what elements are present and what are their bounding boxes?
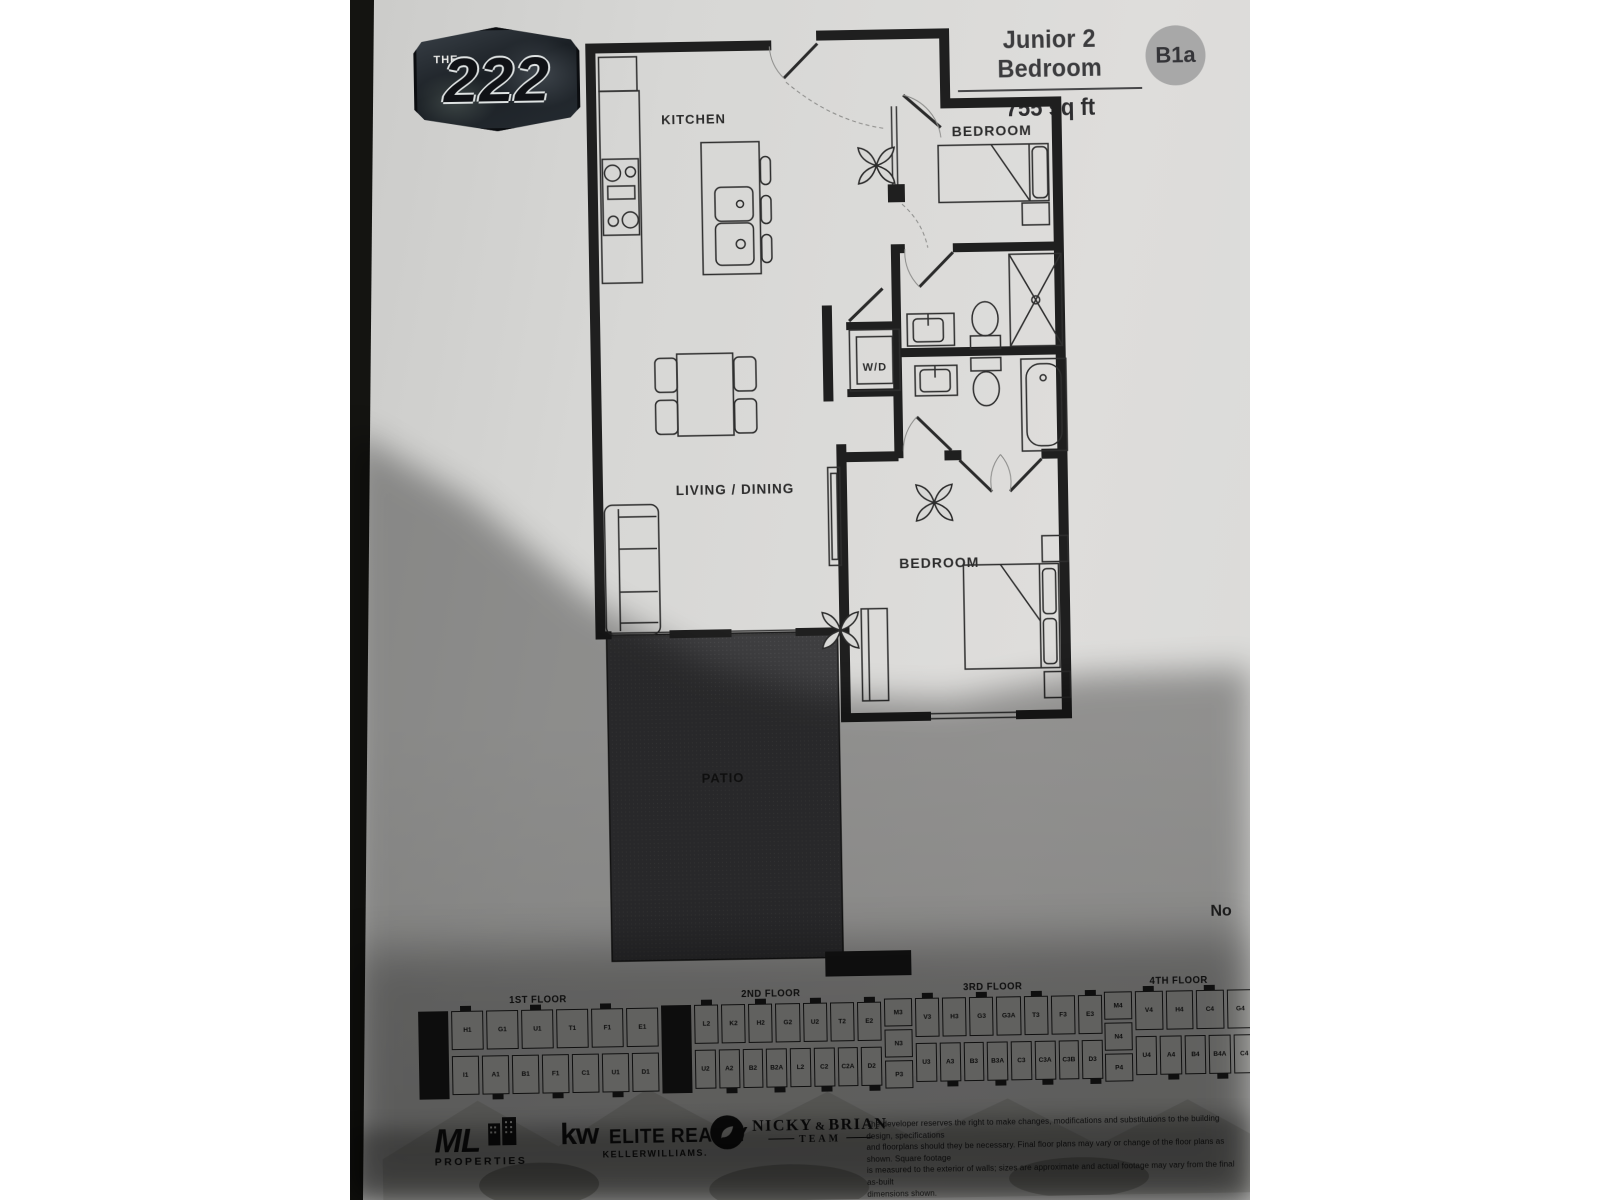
unit-cell: H1 (451, 1011, 484, 1051)
unit-cell: T1 (556, 1009, 589, 1049)
unit-cell: E3 (1078, 995, 1103, 1034)
unit-cell: C4 (1233, 1034, 1250, 1073)
floor-plates: 1ST FLOORH1G1U1T1F1E1I1A1B1F1C1U1D12ND F… (350, 0, 1250, 1200)
unit-cell: C3A (1034, 1041, 1055, 1080)
unit-cell: C3B (1058, 1040, 1079, 1079)
unit-cell: B3A (987, 1041, 1008, 1080)
nicky-brian-logo: NICKY&BRIAN TEAM (710, 1113, 888, 1150)
building-core-block (418, 1011, 450, 1100)
unit-cell: V3 (915, 998, 940, 1037)
unit-cell: A4 (1160, 1035, 1182, 1074)
unit-cell: C2A (837, 1047, 858, 1086)
unit-cell: D1 (632, 1053, 660, 1092)
page: THE 222 Junior 2 Bedroom 755 sq ft B1a (0, 0, 1600, 1200)
unit-cell: U4 (1136, 1036, 1158, 1075)
unit-cell: K2 (721, 1004, 746, 1043)
floor-plate-label: 2ND FLOOR (666, 987, 875, 1002)
unit-cell: T2 (830, 1002, 855, 1041)
floor-plate: 3RD FLOORM3N3P3V3H3G3G3AT3F3E3U3A3B3B3AC… (884, 980, 1104, 1089)
unit-cell: H3 (942, 997, 967, 1036)
unit-cell: H4 (1165, 990, 1193, 1029)
leaf-icon (710, 1115, 745, 1150)
disclaimer-text: The developer reserves the right to make… (866, 1112, 1245, 1200)
unit-cell: U2 (695, 1050, 716, 1089)
unit-cell: B3 (963, 1042, 984, 1081)
unit-cell: E2 (857, 1002, 882, 1041)
unit-cell: E1 (626, 1008, 659, 1048)
unit-cell: M3 (884, 998, 912, 1026)
unit-cell: U1 (521, 1009, 554, 1049)
unit-cell: F3 (1051, 995, 1076, 1034)
unit-cell: N3 (884, 1029, 912, 1057)
unit-cell: B2 (742, 1049, 763, 1088)
unit-cell: F1 (542, 1054, 570, 1093)
unit-cell: D3 (1082, 1040, 1103, 1079)
unit-cell: C1 (572, 1054, 600, 1093)
printed-content: THE 222 Junior 2 Bedroom 755 sq ft B1a (350, 0, 1250, 1200)
unit-cell: G3A (996, 996, 1021, 1035)
unit-cell: I1 (452, 1056, 480, 1095)
ml-properties-logo: ML PROPERTIES (434, 1117, 528, 1169)
unit-cell: C4 (1196, 990, 1224, 1029)
unit-cell: B4A (1209, 1035, 1231, 1074)
unit-cell: G2 (775, 1003, 800, 1042)
unit-cell: N4 (1104, 1022, 1132, 1050)
unit-cell: A1 (482, 1055, 510, 1094)
note-cutoff-text: No (1210, 903, 1232, 921)
floor-plate: 1ST FLOORH1G1U1T1F1E1I1A1B1F1C1U1D1 (418, 993, 660, 1100)
unit-cell: L2 (790, 1048, 811, 1087)
unit-cell: G1 (486, 1010, 519, 1050)
nicky-text: NICKY (752, 1117, 813, 1135)
unit-cell: F1 (591, 1008, 624, 1048)
floor-plate: 4TH FLOORM4N4P4V4H4C4G4U4A4B4B4AC4 (1104, 974, 1250, 1082)
unit-cell: L2 (694, 1004, 719, 1043)
building-core-block (661, 1005, 693, 1094)
unit-cell: D2 (861, 1047, 882, 1086)
unit-cell: B1 (512, 1055, 540, 1094)
unit-cell: U3 (916, 1043, 937, 1082)
unit-cell: B2A (766, 1048, 787, 1087)
ml-logo-text: ML (434, 1122, 480, 1161)
unit-cell: P4 (1105, 1053, 1133, 1081)
floor-plate: 2ND FLOORL2K2H2G2U2T2E2U2A2B2B2AL2C2C2AD… (661, 987, 883, 1094)
unit-cell: C2 (814, 1047, 835, 1086)
floor-plate-label: 3RD FLOOR (889, 980, 1096, 995)
unit-cell: H2 (748, 1004, 773, 1043)
unit-cell: P3 (885, 1060, 913, 1088)
kw-logo-text: kw (560, 1118, 599, 1153)
unit-cell: B4 (1184, 1035, 1206, 1074)
unit-cell: A2 (719, 1049, 740, 1088)
unit-cell: C3 (1011, 1041, 1032, 1080)
unit-cell: A3 (939, 1042, 960, 1081)
unit-cell: M4 (1104, 991, 1132, 1019)
unit-cell: U1 (602, 1053, 630, 1092)
floor-plate-label: 4TH FLOOR (1107, 974, 1250, 987)
floorplan-photo: THE 222 Junior 2 Bedroom 755 sq ft B1a (350, 0, 1250, 1200)
unit-cell: G4 (1226, 989, 1250, 1028)
unit-cell: T3 (1023, 996, 1048, 1035)
unit-cell: U2 (803, 1003, 828, 1042)
unit-cell: G3 (969, 997, 994, 1036)
ampersand: & (813, 1119, 829, 1133)
ml-properties-text: PROPERTIES (435, 1155, 528, 1169)
buildings-icon (486, 1117, 521, 1151)
unit-cell: V4 (1135, 991, 1163, 1030)
